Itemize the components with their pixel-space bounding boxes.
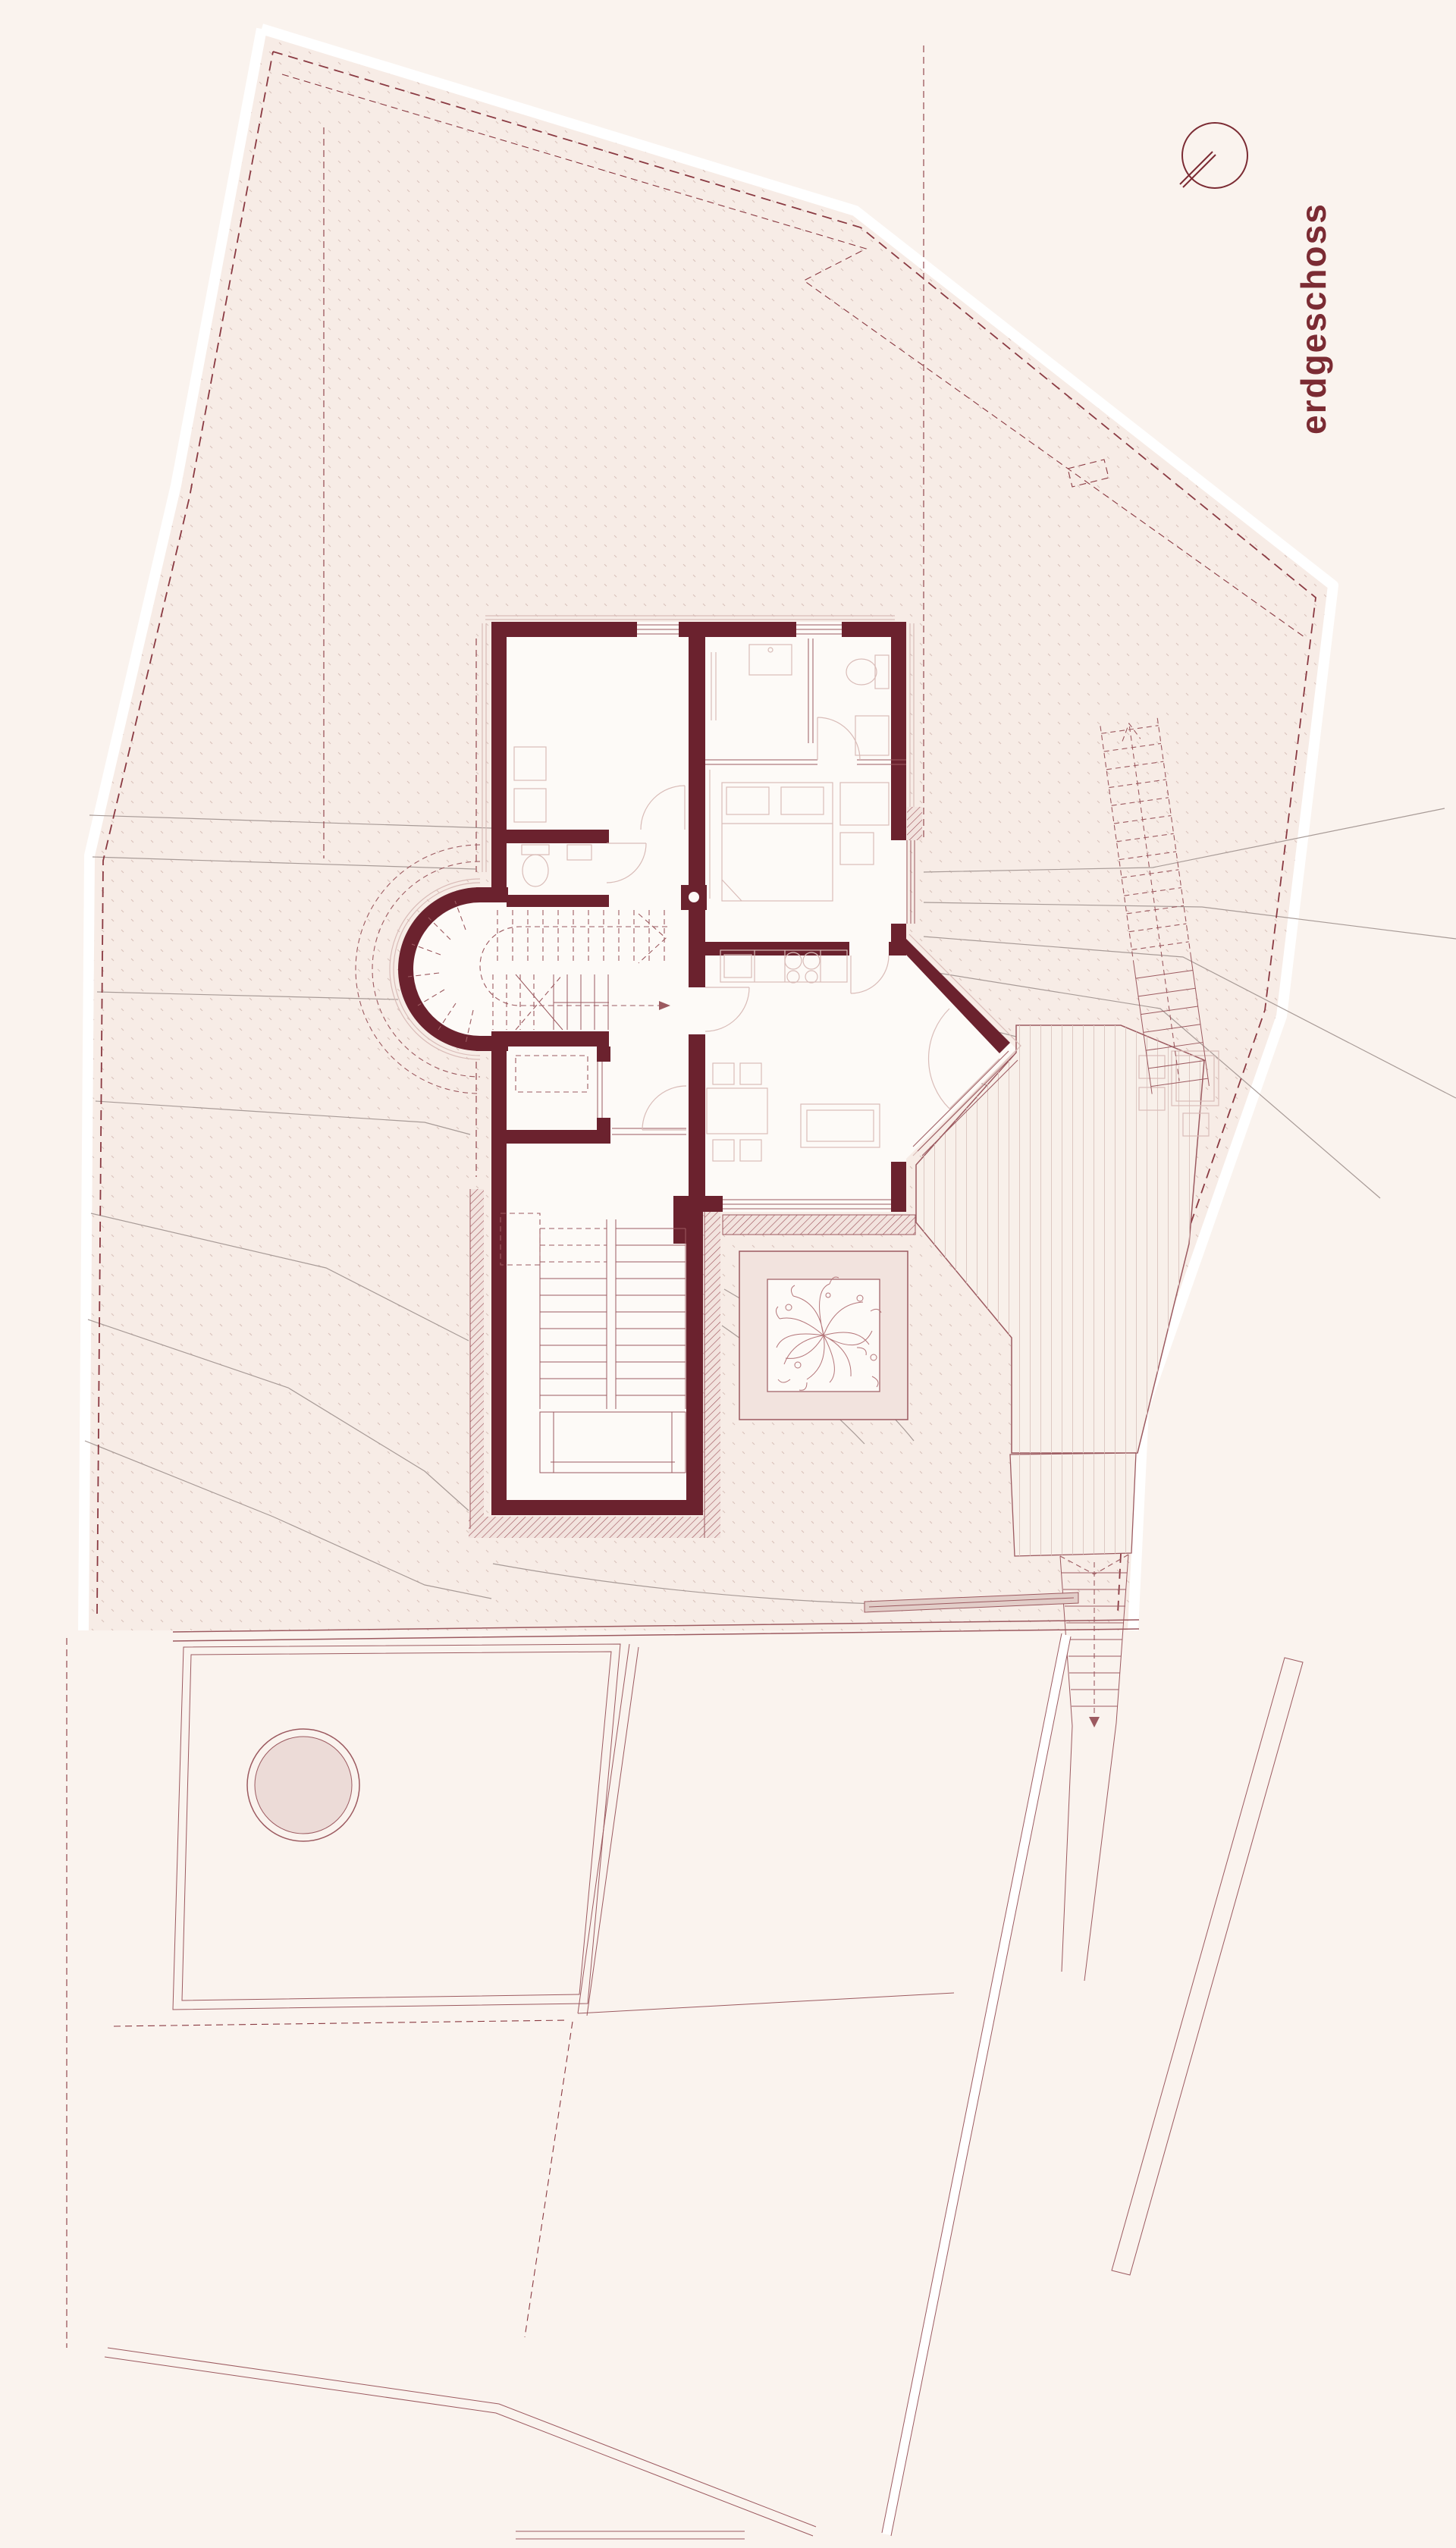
apse-stub-top xyxy=(476,887,508,902)
wall-top-b xyxy=(679,622,796,637)
site-plan-sheet: erdgeschoss xyxy=(0,0,1456,2548)
parcel-middle-border xyxy=(578,1644,639,2016)
wc-wall-right-stub xyxy=(595,830,609,843)
wc-wall-bottom xyxy=(507,895,609,907)
garden-path-taper xyxy=(1062,1723,1116,1981)
door-pivot-dot xyxy=(689,892,699,902)
north-arrow-icon xyxy=(1180,123,1247,188)
ramp-planks xyxy=(1010,1453,1136,1556)
wing-wall-right xyxy=(686,1212,703,1515)
stair-wing-floor xyxy=(491,1144,703,1515)
parcel-left-border-inner xyxy=(182,1652,611,2000)
retaining-bottom-hatch xyxy=(469,1517,720,1538)
tree-planter xyxy=(739,1251,908,1420)
wall-right-upper xyxy=(891,622,906,840)
wing-wall-left xyxy=(491,1147,507,1515)
wall-right-lower xyxy=(891,1162,906,1212)
parcel-left-border xyxy=(173,1644,620,2010)
wall-spine-2 xyxy=(689,910,705,987)
floor-title: erdgeschoss xyxy=(1291,188,1336,450)
hedge-strip xyxy=(1112,1658,1303,2275)
pond-circle xyxy=(255,1737,352,1834)
retaining-right-hatch xyxy=(704,1212,720,1538)
wall-top-a xyxy=(491,622,637,637)
parcel-middle-bottom xyxy=(578,1993,954,2013)
bottom-wall-lines xyxy=(516,2531,745,2539)
pier-east-hatch xyxy=(907,807,922,840)
garden-parcels xyxy=(67,1620,1303,2539)
garden-stair-arrow xyxy=(1089,1717,1100,1727)
parcel-lower-solid xyxy=(105,2348,816,2536)
wing-wall-bottom xyxy=(491,1500,703,1515)
wall-spine-1 xyxy=(689,637,705,885)
hall-wall-bottom xyxy=(491,1031,609,1046)
retaining-left-hatch xyxy=(470,1189,484,1529)
floor-plan-drawing xyxy=(0,0,1456,2548)
window-sill-south-hatch xyxy=(723,1215,915,1235)
storage-wall-bottom xyxy=(491,1130,610,1144)
wall-left-upper xyxy=(491,622,507,893)
wc-wall-top xyxy=(507,830,607,843)
wall-spine-3 xyxy=(689,1034,705,1196)
diagonal-gap xyxy=(886,1635,1066,2534)
